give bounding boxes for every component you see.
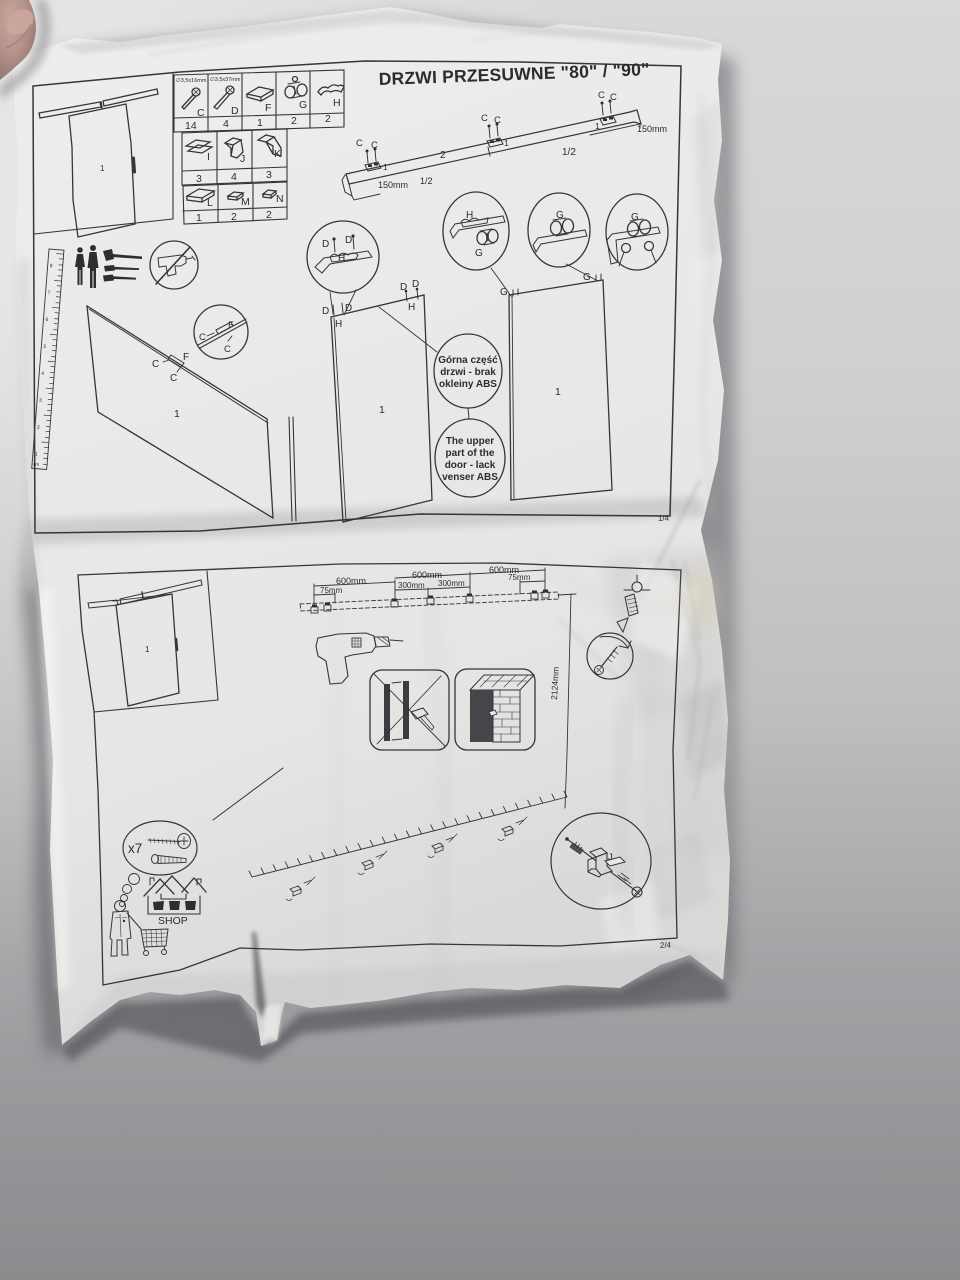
svg-text:1: 1 [383, 162, 388, 172]
svg-text:H: H [408, 302, 415, 313]
svg-text:14: 14 [185, 120, 197, 132]
svg-text:2124mm: 2124mm [549, 667, 561, 701]
svg-text:2: 2 [440, 150, 446, 161]
svg-text:D: D [231, 105, 239, 117]
svg-text:2: 2 [325, 113, 331, 125]
svg-text:J: J [608, 852, 613, 863]
svg-text:1: 1 [504, 138, 509, 148]
svg-text:SHOP: SHOP [158, 915, 188, 927]
svg-text:4: 4 [223, 118, 229, 130]
svg-text:H: H [333, 97, 341, 109]
svg-text:1: 1 [196, 212, 202, 224]
svg-text:150mm: 150mm [637, 124, 667, 134]
svg-text:H: H [466, 210, 473, 221]
svg-text:I: I [207, 151, 210, 163]
svg-text:C: C [371, 140, 378, 151]
svg-text:venser ABS: venser ABS [442, 472, 498, 483]
svg-text:C: C [481, 113, 488, 124]
svg-text:H: H [338, 253, 345, 264]
svg-text:1: 1 [145, 645, 150, 654]
svg-text:600mm: 600mm [336, 576, 366, 586]
svg-text:G: G [299, 99, 307, 111]
svg-text:1: 1 [174, 408, 180, 420]
svg-text:2: 2 [266, 209, 272, 221]
svg-text:okleiny ABS: okleiny ABS [439, 379, 497, 390]
svg-text:H: H [335, 319, 342, 330]
svg-text:C: C [494, 115, 501, 126]
svg-text:1: 1 [379, 404, 385, 416]
svg-text:150mm: 150mm [378, 180, 408, 190]
svg-text:1: 1 [100, 164, 105, 173]
svg-text:75mm: 75mm [508, 573, 531, 582]
svg-text:D: D [322, 239, 329, 250]
svg-text:G: G [500, 287, 508, 298]
svg-text:cm: cm [33, 461, 40, 466]
svg-text:D: D [322, 306, 329, 317]
svg-text:1: 1 [555, 386, 561, 398]
svg-text:C: C [199, 332, 206, 343]
svg-text:C: C [197, 107, 205, 119]
svg-text:N: N [276, 193, 284, 205]
svg-text:Górna część: Górna część [438, 355, 498, 366]
svg-text:G: G [475, 248, 483, 259]
svg-text:F: F [183, 352, 189, 363]
svg-text:3: 3 [196, 173, 202, 185]
svg-text:∅3,5x16mm: ∅3,5x16mm [176, 77, 207, 84]
svg-text:part of the: part of the [446, 448, 495, 459]
svg-text:C: C [610, 92, 617, 103]
svg-text:2: 2 [291, 115, 297, 127]
svg-text:F: F [228, 320, 234, 331]
svg-text:D: D [412, 279, 419, 290]
svg-text:door - lack: door - lack [445, 460, 496, 471]
svg-text:2/4: 2/4 [660, 941, 672, 950]
svg-text:C: C [170, 373, 177, 384]
svg-text:C: C [356, 138, 363, 149]
svg-text:G: G [556, 210, 564, 221]
svg-text:G: G [631, 212, 639, 223]
svg-text:1: 1 [595, 121, 600, 131]
svg-text:1/2: 1/2 [562, 147, 576, 158]
svg-text:F: F [265, 102, 271, 114]
svg-text:300mm: 300mm [438, 579, 465, 588]
svg-text:C: C [598, 90, 605, 101]
svg-text:300mm: 300mm [398, 581, 425, 590]
svg-text:75mm: 75mm [320, 586, 343, 595]
svg-text:4: 4 [231, 171, 237, 183]
svg-text:drzwi - brak: drzwi - brak [440, 367, 496, 378]
svg-text:2: 2 [231, 211, 237, 223]
svg-text:∅3,5x37mm: ∅3,5x37mm [210, 76, 241, 83]
svg-text:3: 3 [266, 169, 272, 181]
svg-text:The upper: The upper [446, 436, 494, 447]
svg-text:1/4: 1/4 [658, 514, 670, 523]
svg-text:1/2: 1/2 [420, 176, 433, 186]
svg-text:D: D [345, 235, 352, 246]
svg-text:x7: x7 [128, 841, 142, 856]
svg-text:C: C [152, 359, 159, 370]
svg-text:M: M [241, 196, 250, 208]
svg-text:1: 1 [257, 117, 263, 129]
svg-text:C: C [224, 344, 231, 355]
